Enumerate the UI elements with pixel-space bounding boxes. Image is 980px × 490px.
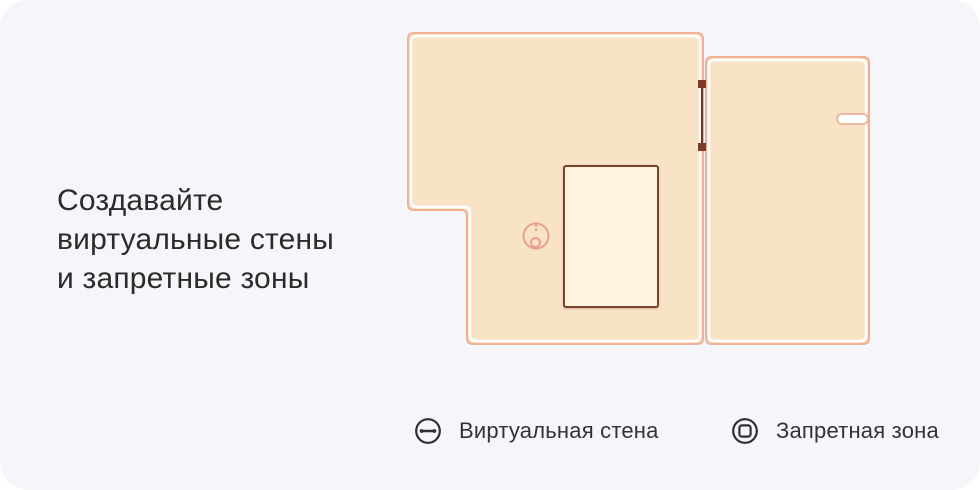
floor-plan-map [400, 28, 880, 352]
no-go-zone-rect [564, 166, 658, 307]
legend-no-go-zone-label: Запретная зона [776, 418, 939, 444]
feature-card: Создавайте виртуальные стены и запретные… [0, 0, 980, 490]
virtual-wall-endpoint-top [698, 80, 706, 88]
right-room [706, 57, 869, 344]
legend-no-go-zone: Запретная зона [731, 415, 939, 447]
feature-title: Создавайте виртуальные стены и запретные… [57, 181, 397, 298]
legend-virtual-wall-label: Виртуальная стена [459, 418, 659, 444]
no-go-zone-icon [731, 417, 759, 445]
promo-screenshot: Создавайте виртуальные стены и запретные… [0, 0, 980, 490]
interior-wall-notch [837, 114, 868, 124]
virtual-wall-endpoint-bottom [698, 143, 706, 151]
virtual-wall-icon [414, 417, 442, 445]
legend-virtual-wall: Виртуальная стена [414, 415, 659, 447]
